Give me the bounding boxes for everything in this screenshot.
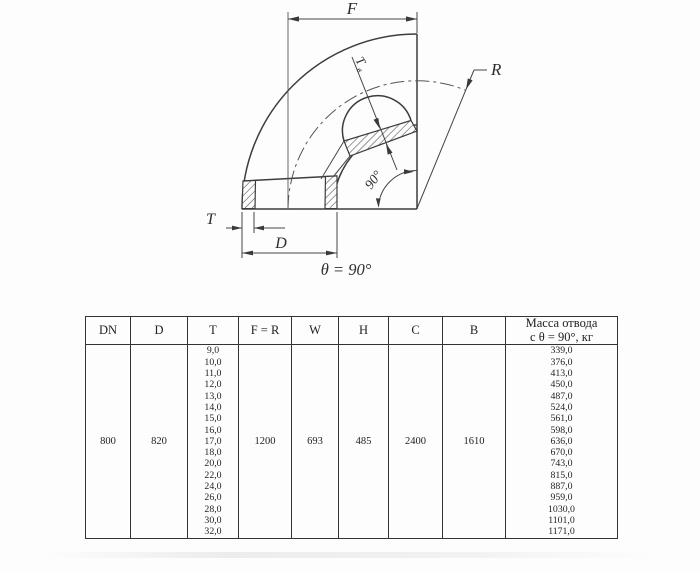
cell-mass-values: 339,0376,0413,0450,0487,0524,0561,0598,0… [506, 345, 618, 539]
cell-d: 820 [131, 345, 188, 539]
r-arrow [466, 78, 473, 89]
angle-arc [379, 170, 418, 206]
list-item: 14,0 [188, 402, 238, 413]
list-item: 24,0 [188, 481, 238, 492]
list-item: 30,0 [188, 515, 238, 526]
cell-w: 693 [292, 345, 339, 539]
col-header-c: C [389, 317, 443, 345]
page: F R Т в 90° T [0, 0, 700, 573]
t-values-list: 9,010,011,012,013,014,015,016,017,018,02… [188, 345, 238, 538]
f-label: F [346, 0, 358, 18]
cell-b: 1610 [443, 345, 506, 539]
angle-arrow-right [404, 169, 414, 174]
list-item: 743,0 [506, 458, 617, 469]
angle-label: 90° [362, 167, 386, 192]
list-item: 561,0 [506, 413, 617, 424]
tb-label: Т в [350, 54, 372, 75]
cell-fr: 1200 [239, 345, 292, 539]
list-item: 15,0 [188, 413, 238, 424]
list-item: 1030,0 [506, 504, 617, 515]
mass-header-line1: Масса отвода [506, 317, 617, 330]
d-arrow-right [326, 251, 337, 256]
d-dimension [242, 212, 337, 258]
header-row: DN D T F = R W H C B Масса отвода с θ = … [86, 317, 618, 345]
r-leader [417, 70, 487, 209]
list-item: 17,0 [188, 436, 238, 447]
col-header-h: H [339, 317, 389, 345]
list-item: 11,0 [188, 368, 238, 379]
col-header-d: D [131, 317, 188, 345]
list-item: 815,0 [506, 470, 617, 481]
d-label: D [274, 235, 287, 252]
list-item: 20,0 [188, 458, 238, 469]
list-item: 9,0 [188, 345, 238, 356]
t-arrow-right [254, 226, 264, 231]
list-item: 1171,0 [506, 526, 617, 537]
list-item: 339,0 [506, 345, 617, 356]
cell-c: 2400 [389, 345, 443, 539]
mass-values-list: 339,0376,0413,0450,0487,0524,0561,0598,0… [506, 345, 617, 538]
mass-header-line2: с θ = 90°, кг [506, 331, 617, 344]
list-item: 413,0 [506, 368, 617, 379]
list-item: 524,0 [506, 402, 617, 413]
list-item: 32,0 [188, 526, 238, 537]
list-item: 670,0 [506, 447, 617, 458]
list-item: 959,0 [506, 492, 617, 503]
cell-t-values: 9,010,011,012,013,014,015,016,017,018,02… [188, 345, 239, 539]
d-arrow-left [242, 251, 253, 256]
cell-h: 485 [339, 345, 389, 539]
list-item: 13,0 [188, 391, 238, 402]
t-dimension [226, 212, 285, 233]
list-item: 636,0 [506, 436, 617, 447]
list-item: 28,0 [188, 504, 238, 515]
tb-arrow-lower [386, 144, 393, 155]
list-item: 598,0 [506, 425, 617, 436]
angle-arrow-bottom [376, 198, 381, 207]
cell-dn: 800 [86, 345, 131, 539]
right-wall-section [325, 176, 337, 209]
t-arrow-left [232, 226, 242, 231]
col-header-t: T [188, 317, 239, 345]
elbow-drawing: F R Т в 90° T [0, 0, 700, 305]
list-item: 1101,0 [506, 515, 617, 526]
theta-caption: θ = 90° [321, 260, 372, 279]
col-header-w: W [292, 317, 339, 345]
f-arrow-left [288, 16, 299, 21]
col-header-dn: DN [86, 317, 131, 345]
col-header-b: B [443, 317, 506, 345]
col-header-fr: F = R [239, 317, 292, 345]
list-item: 26,0 [188, 492, 238, 503]
list-item: 18,0 [188, 447, 238, 458]
list-item: 16,0 [188, 425, 238, 436]
list-item: 376,0 [506, 357, 617, 368]
dimension-table: DN D T F = R W H C B Масса отвода с θ = … [85, 316, 618, 539]
list-item: 450,0 [506, 379, 617, 390]
col-header-mass: Масса отвода с θ = 90°, кг [506, 317, 618, 345]
list-item: 487,0 [506, 391, 617, 402]
tb-arrow-upper [374, 118, 381, 129]
f-arrow-right [406, 16, 417, 21]
left-wall-section [242, 180, 256, 208]
t-label: T [206, 211, 216, 228]
r-label: R [490, 60, 502, 79]
list-item: 12,0 [188, 379, 238, 390]
table-row: 800 820 9,010,011,012,013,014,015,016,01… [86, 345, 618, 539]
list-item: 22,0 [188, 470, 238, 481]
list-item: 10,0 [188, 357, 238, 368]
list-item: 887,0 [506, 481, 617, 492]
scan-artifact [40, 552, 660, 558]
mid-section-band [344, 121, 417, 157]
